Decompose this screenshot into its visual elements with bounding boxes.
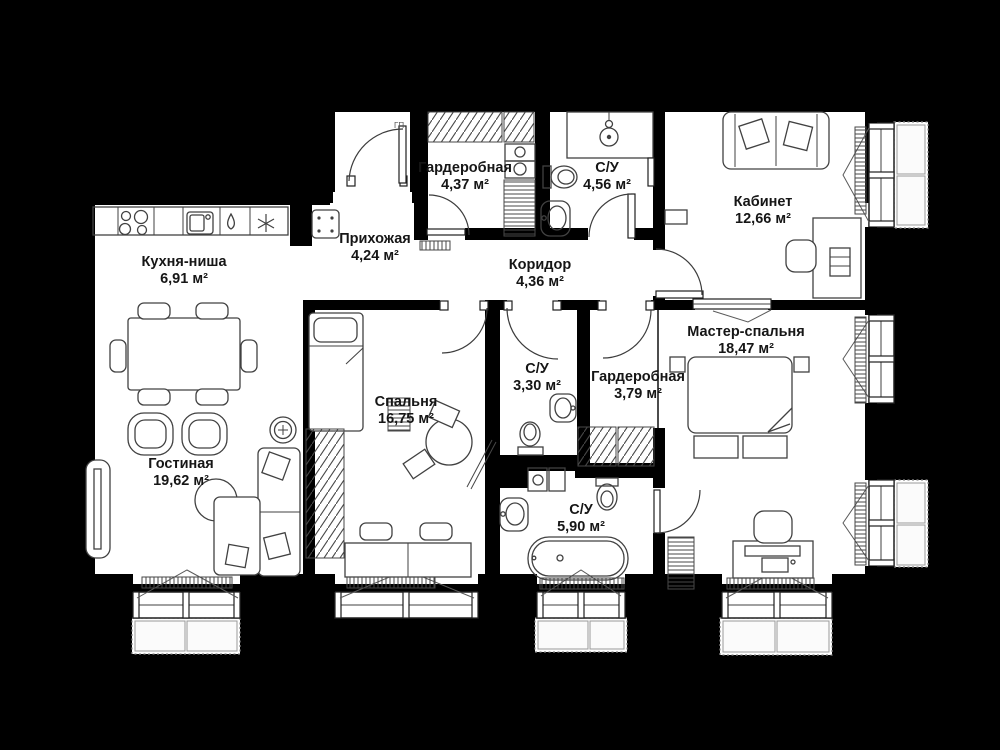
room-name: Коридор [509,257,571,274]
room-label-corridor: Коридор 4,36 м² [509,257,571,291]
room-name: Гардеробная [591,369,685,386]
room-name: Кабинет [734,194,793,211]
room-area: 19,62 м² [148,473,214,490]
radiator [727,578,814,589]
room-area: 4,36 м² [509,274,571,291]
entry-door-mark: ГП [394,121,404,130]
room-label-bathroom-entry: С/У 4,56 м² [583,160,631,194]
radiator [855,317,866,403]
room-area: 3,79 м² [591,386,685,403]
ceiling-light [270,417,296,443]
clothes-rail [618,427,654,466]
radiator [855,483,866,565]
room-name: Прихожая [339,231,411,248]
radiator [855,127,866,214]
room-label-wardrobe-master: Гардеробная 3,79 м² [591,369,685,403]
room-label-wardrobe-entry: Гардеробная 4,37 м² [418,160,512,194]
tv-console [86,460,110,558]
nightstand [794,357,809,372]
room-name: Спальня [375,394,438,411]
room-label-hallway: Прихожая 4,24 м² [339,231,411,265]
radiator [142,577,232,588]
ladder-rack [668,537,694,589]
wardrobe-rail [306,429,344,558]
armchair [182,413,227,455]
room-area: 3,30 м² [513,378,561,395]
room-label-bedroom: Спальня 16,75 м² [375,394,438,428]
room-area: 4,56 м² [583,177,631,194]
chair-study [786,240,816,272]
bed-single [309,313,363,431]
room-area: 18,47 м² [687,341,804,358]
room-label-bathroom-bedroom: С/У 3,30 м² [513,361,561,395]
shower-glass [648,158,654,186]
room-area: 16,75 м² [375,411,438,428]
room-name: С/У [557,502,605,519]
wardrobe-master-fixtures [578,427,654,466]
room-area: 12,66 м² [734,211,793,228]
room-label-master-bedroom: Мастер-спальня 18,47 м² [687,324,804,358]
room-area: 4,37 м² [418,177,512,194]
chair-master [754,511,792,543]
room-label-living-room: Гостиная 19,62 м² [148,456,214,490]
room-label-bathroom-master: С/У 5,90 м² [557,502,605,536]
dining-table [110,303,257,405]
armchair [128,413,173,455]
floor-plan: Кухня-ниша 6,91 м² Прихожая 4,24 м² Гард… [0,0,1000,750]
floor-plan-canvas [0,0,1000,750]
room-area: 6,91 м² [141,271,226,288]
chair [360,523,392,540]
radiator [540,578,624,589]
room-name: Мастер-спальня [687,324,804,341]
room-label-kitchen: Кухня-ниша 6,91 м² [141,254,226,288]
room-name: Кухня-ниша [141,254,226,271]
clothes-rail [504,112,534,142]
clothes-rail [578,427,616,466]
room-name: С/У [583,160,631,177]
room-area: 5,90 м² [557,519,605,536]
sofa-study [723,112,829,169]
room-name: Гостиная [148,456,214,473]
room-area: 4,24 м² [339,248,411,265]
chair [420,523,452,540]
radiator [347,577,435,588]
shoe-bench [420,241,450,250]
clothes-rail [428,112,502,142]
room-name: С/У [513,361,561,378]
room-name: Гардеробная [418,160,512,177]
room-label-study: Кабинет 12,66 м² [734,194,793,228]
